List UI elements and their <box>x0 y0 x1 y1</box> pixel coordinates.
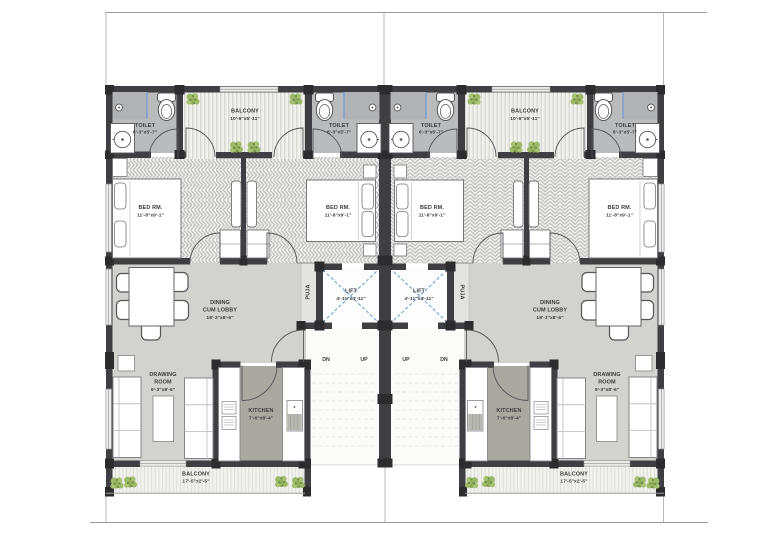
svg-text:PUJA: PUJA <box>306 284 312 299</box>
svg-text:DN: DN <box>322 357 330 363</box>
svg-text:7'-6"x8'-4": 7'-6"x8'-4" <box>497 416 521 422</box>
svg-text:18'-3"x8'-6": 18'-3"x8'-6" <box>206 315 233 321</box>
svg-text:BED RM.: BED RM. <box>326 205 350 211</box>
svg-text:BED RM.: BED RM. <box>608 205 632 211</box>
svg-text:UP: UP <box>360 357 368 363</box>
svg-text:17'-5"x2'-5": 17'-5"x2'-5" <box>182 479 209 485</box>
svg-text:DINING: DINING <box>210 300 230 306</box>
svg-text:TOILET: TOILET <box>329 123 350 129</box>
svg-text:6'-3"x5'-7": 6'-3"x5'-7" <box>133 130 157 136</box>
svg-text:9'-3"x8'-6": 9'-3"x8'-6" <box>151 387 175 393</box>
svg-text:9'-3"x8'-6": 9'-3"x8'-6" <box>595 387 619 393</box>
svg-text:18'-3"x8'-6": 18'-3"x8'-6" <box>536 315 563 321</box>
svg-text:ROOM: ROOM <box>598 380 616 386</box>
svg-text:DRAWING: DRAWING <box>149 372 176 378</box>
svg-text:BALCONY: BALCONY <box>511 109 539 115</box>
svg-text:11'-8"x9'-1": 11'-8"x9'-1" <box>137 213 164 219</box>
svg-text:DRAWING: DRAWING <box>593 372 620 378</box>
svg-text:LIFT: LIFT <box>345 289 358 295</box>
svg-text:6'-3"x5'-7": 6'-3"x5'-7" <box>419 130 443 136</box>
svg-text:TOILET: TOILET <box>421 123 442 129</box>
svg-text:CUM LOBBY: CUM LOBBY <box>203 308 237 314</box>
svg-text:KITCHEN: KITCHEN <box>248 408 273 414</box>
svg-text:DINING: DINING <box>540 300 560 306</box>
svg-text:10'-6"x5'-11": 10'-6"x5'-11" <box>230 116 260 122</box>
svg-text:ROOM: ROOM <box>154 380 172 386</box>
svg-text:BED RM.: BED RM. <box>420 205 444 211</box>
svg-text:11'-8"x9'-1": 11'-8"x9'-1" <box>325 213 352 219</box>
svg-text:BALCONY: BALCONY <box>182 472 210 478</box>
svg-text:10'-6"x5'-11": 10'-6"x5'-11" <box>510 116 540 122</box>
svg-text:TOILET: TOILET <box>135 123 156 129</box>
svg-text:11'-8"x9'-1": 11'-8"x9'-1" <box>419 213 446 219</box>
svg-text:6'-3"x5'-7": 6'-3"x5'-7" <box>327 130 351 136</box>
svg-text:CUM LOBBY: CUM LOBBY <box>533 308 567 314</box>
svg-text:UP: UP <box>402 357 410 363</box>
svg-text:7'-6"x8'-4": 7'-6"x8'-4" <box>249 416 273 422</box>
svg-text:LIFT: LIFT <box>413 289 426 295</box>
svg-text:PUJA: PUJA <box>459 284 465 299</box>
svg-text:BALCONY: BALCONY <box>560 472 588 478</box>
svg-text:DN: DN <box>440 357 448 363</box>
svg-text:4'-11"x4'-11": 4'-11"x4'-11" <box>404 296 433 302</box>
svg-text:4'-11"x4'-11": 4'-11"x4'-11" <box>336 296 365 302</box>
svg-text:17'-5"x2'-5": 17'-5"x2'-5" <box>560 479 587 485</box>
svg-text:11'-8"x9'-1": 11'-8"x9'-1" <box>606 213 633 219</box>
svg-text:6'-3"x5'-7": 6'-3"x5'-7" <box>613 130 637 136</box>
svg-text:KITCHEN: KITCHEN <box>496 408 521 414</box>
svg-text:BED RM.: BED RM. <box>139 205 163 211</box>
svg-text:TOILET: TOILET <box>615 123 636 129</box>
svg-text:BALCONY: BALCONY <box>231 109 259 115</box>
